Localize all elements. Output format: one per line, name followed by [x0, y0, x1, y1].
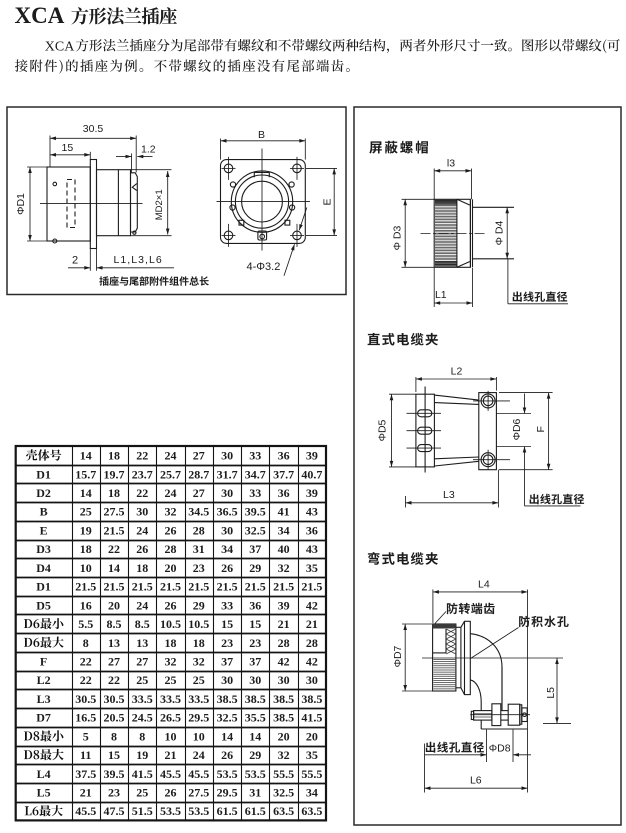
svg-text:10: 10 — [193, 729, 205, 743]
svg-text:21.5: 21.5 — [217, 580, 238, 594]
svg-text:16.5: 16.5 — [75, 711, 96, 725]
svg-text:XCA: XCA — [45, 39, 75, 54]
svg-text:36.5: 36.5 — [217, 505, 238, 519]
svg-text:32.5: 32.5 — [217, 711, 238, 725]
svg-text:27.5: 27.5 — [188, 786, 209, 800]
svg-text:21: 21 — [306, 617, 318, 631]
svg-text:14: 14 — [249, 729, 261, 743]
svg-text:35: 35 — [306, 561, 318, 575]
svg-text:32: 32 — [165, 505, 177, 519]
svg-text:63.5: 63.5 — [301, 804, 322, 818]
svg-text:Φ D3: Φ D3 — [392, 225, 404, 250]
svg-text:26: 26 — [165, 523, 177, 537]
svg-text:37.7: 37.7 — [273, 467, 294, 481]
svg-text:15: 15 — [221, 617, 233, 631]
svg-text:24: 24 — [136, 523, 148, 537]
svg-text:21.5: 21.5 — [245, 580, 266, 594]
svg-text:32.5: 32.5 — [245, 523, 266, 537]
svg-text:34: 34 — [278, 523, 290, 537]
svg-text:28: 28 — [306, 636, 318, 650]
svg-text:15: 15 — [249, 617, 261, 631]
svg-text:38.5: 38.5 — [273, 692, 294, 706]
svg-text:45.5: 45.5 — [188, 767, 209, 781]
svg-text:L4: L4 — [37, 767, 51, 781]
svg-text:18: 18 — [193, 636, 205, 650]
svg-text:36: 36 — [306, 523, 318, 537]
svg-text:23.7: 23.7 — [132, 467, 153, 481]
svg-text:36: 36 — [249, 598, 261, 612]
svg-text:25: 25 — [136, 673, 148, 687]
svg-text:28.7: 28.7 — [188, 467, 209, 481]
svg-text:32: 32 — [165, 655, 177, 669]
svg-text:34.5: 34.5 — [188, 505, 209, 519]
svg-text:21.5: 21.5 — [160, 580, 181, 594]
svg-text:55.5: 55.5 — [273, 767, 294, 781]
svg-text:23: 23 — [249, 636, 261, 650]
svg-text:ΦD7: ΦD7 — [392, 645, 404, 667]
svg-text:42: 42 — [278, 655, 290, 669]
svg-text:61.5: 61.5 — [245, 804, 266, 818]
svg-text:37: 37 — [221, 655, 233, 669]
svg-text:31: 31 — [249, 786, 261, 800]
svg-text:21.5: 21.5 — [273, 580, 294, 594]
svg-text:45.5: 45.5 — [160, 767, 181, 781]
svg-text:8.5: 8.5 — [135, 617, 150, 631]
svg-text:39: 39 — [278, 598, 290, 612]
svg-text:29.5: 29.5 — [188, 711, 209, 725]
svg-text:30: 30 — [221, 523, 233, 537]
svg-text:14: 14 — [108, 561, 120, 575]
svg-text:30.5: 30.5 — [75, 692, 96, 706]
svg-text:30: 30 — [136, 505, 148, 519]
svg-text:L2: L2 — [451, 366, 463, 378]
svg-text:40.7: 40.7 — [301, 467, 322, 481]
svg-text:21.5: 21.5 — [188, 580, 209, 594]
svg-text:21: 21 — [278, 617, 290, 631]
svg-text:15: 15 — [62, 142, 74, 154]
svg-text:39: 39 — [306, 449, 318, 463]
svg-text:L6: L6 — [470, 774, 482, 786]
svg-text:27.5: 27.5 — [104, 505, 125, 519]
svg-text:34.7: 34.7 — [245, 467, 266, 481]
svg-text:26.5: 26.5 — [160, 711, 181, 725]
svg-text:8: 8 — [83, 636, 89, 650]
svg-text:19: 19 — [136, 748, 148, 762]
svg-text:L5: L5 — [545, 687, 557, 699]
svg-text:22: 22 — [80, 655, 92, 669]
svg-text:L4: L4 — [478, 578, 490, 590]
svg-text:39.5: 39.5 — [104, 767, 125, 781]
svg-text:38.5: 38.5 — [301, 692, 322, 706]
svg-text:D1: D1 — [36, 467, 51, 481]
svg-text:31.7: 31.7 — [217, 467, 238, 481]
svg-text:25: 25 — [136, 786, 148, 800]
svg-text:19.7: 19.7 — [104, 467, 125, 481]
svg-text:10: 10 — [165, 729, 177, 743]
svg-text:ΦD1: ΦD1 — [15, 193, 27, 215]
svg-text:10.5: 10.5 — [160, 617, 181, 631]
svg-text:25.7: 25.7 — [160, 467, 181, 481]
svg-text:29: 29 — [249, 561, 261, 575]
svg-text:39: 39 — [306, 486, 318, 500]
svg-text:13: 13 — [108, 636, 120, 650]
svg-text:30: 30 — [221, 673, 233, 687]
svg-text:18: 18 — [80, 542, 92, 556]
svg-text:38.5: 38.5 — [245, 692, 266, 706]
svg-text:Φ D4: Φ D4 — [494, 220, 506, 245]
svg-text:31: 31 — [193, 542, 205, 556]
svg-text:35.5: 35.5 — [245, 711, 266, 725]
svg-text:25: 25 — [193, 673, 205, 687]
svg-text:35: 35 — [306, 748, 318, 762]
svg-text:11: 11 — [80, 748, 91, 762]
svg-text:18: 18 — [108, 486, 120, 500]
svg-text:18: 18 — [165, 636, 177, 650]
svg-text:D1: D1 — [36, 580, 51, 594]
svg-text:22: 22 — [108, 673, 120, 687]
svg-text:32.5: 32.5 — [273, 786, 294, 800]
svg-text:29: 29 — [193, 598, 205, 612]
svg-text:24.5: 24.5 — [132, 711, 153, 725]
svg-text:18: 18 — [136, 561, 148, 575]
svg-text:18: 18 — [108, 449, 120, 463]
svg-text:ΦD8: ΦD8 — [489, 743, 511, 755]
svg-text:42: 42 — [306, 655, 318, 669]
svg-text:30: 30 — [221, 486, 233, 500]
svg-text:22: 22 — [80, 673, 92, 687]
svg-text:53.5: 53.5 — [217, 767, 238, 781]
svg-text:16: 16 — [80, 598, 92, 612]
svg-text:30.5: 30.5 — [83, 123, 104, 135]
svg-text:1.2: 1.2 — [141, 144, 156, 156]
svg-text:D5: D5 — [36, 598, 51, 612]
svg-text:10: 10 — [80, 561, 92, 575]
svg-text:53.5: 53.5 — [245, 767, 266, 781]
svg-text:28: 28 — [278, 636, 290, 650]
svg-text:27: 27 — [193, 486, 205, 500]
svg-text:42: 42 — [306, 598, 318, 612]
svg-text:B: B — [258, 129, 265, 141]
svg-text:15: 15 — [108, 748, 120, 762]
svg-text:24: 24 — [193, 748, 205, 762]
svg-text:38.5: 38.5 — [273, 711, 294, 725]
svg-text:36: 36 — [278, 486, 290, 500]
svg-text:26: 26 — [165, 786, 177, 800]
svg-text:L1,L3,L6: L1,L3,L6 — [114, 254, 163, 266]
svg-text:39.5: 39.5 — [245, 505, 266, 519]
svg-text:30: 30 — [278, 673, 290, 687]
svg-text:30: 30 — [306, 673, 318, 687]
svg-text:22: 22 — [108, 542, 120, 556]
svg-text:22: 22 — [136, 449, 148, 463]
svg-text:D7: D7 — [36, 711, 51, 725]
svg-text:34: 34 — [306, 786, 318, 800]
svg-text:5: 5 — [83, 729, 89, 743]
svg-text:21.5: 21.5 — [75, 580, 96, 594]
svg-text:ΦD5: ΦD5 — [377, 419, 389, 441]
svg-text:33: 33 — [249, 449, 261, 463]
svg-text:E: E — [40, 523, 48, 537]
svg-text:14: 14 — [221, 729, 233, 743]
svg-text:25: 25 — [80, 505, 92, 519]
svg-text:4-Φ3.2: 4-Φ3.2 — [247, 261, 281, 273]
svg-text:26: 26 — [221, 561, 233, 575]
svg-text:29: 29 — [249, 748, 261, 762]
svg-text:33.5: 33.5 — [160, 692, 181, 706]
svg-text:41: 41 — [278, 505, 290, 519]
svg-text:13: 13 — [136, 636, 148, 650]
svg-text:33.5: 33.5 — [132, 692, 153, 706]
svg-text:21.5: 21.5 — [104, 580, 125, 594]
svg-text:MD2×1: MD2×1 — [154, 189, 165, 220]
svg-text:24: 24 — [136, 598, 148, 612]
svg-text:55.5: 55.5 — [301, 767, 322, 781]
svg-text:L3: L3 — [37, 692, 51, 706]
svg-text:D4: D4 — [36, 561, 51, 575]
svg-text:20: 20 — [108, 598, 120, 612]
svg-text:61.5: 61.5 — [217, 804, 238, 818]
svg-text:63.5: 63.5 — [273, 804, 294, 818]
svg-text:F: F — [40, 655, 47, 669]
svg-text:l3: l3 — [447, 158, 455, 170]
svg-text:22: 22 — [136, 486, 148, 500]
svg-text:32: 32 — [193, 655, 205, 669]
svg-text:E: E — [322, 198, 334, 205]
svg-text:21: 21 — [80, 786, 92, 800]
svg-text:21.5: 21.5 — [132, 580, 153, 594]
svg-text:41.5: 41.5 — [301, 711, 322, 725]
svg-text:D3: D3 — [36, 542, 51, 556]
svg-text:45.5: 45.5 — [75, 804, 96, 818]
svg-text:21.5: 21.5 — [104, 523, 125, 537]
svg-text:30.5: 30.5 — [104, 692, 125, 706]
svg-text:19: 19 — [80, 523, 92, 537]
svg-text:8: 8 — [111, 729, 117, 743]
svg-text:47.5: 47.5 — [104, 804, 125, 818]
svg-text:23: 23 — [221, 636, 233, 650]
svg-text:F: F — [535, 426, 547, 432]
svg-text:L3: L3 — [443, 489, 455, 501]
svg-text:14: 14 — [80, 449, 92, 463]
svg-text:34: 34 — [221, 542, 233, 556]
svg-text:L1: L1 — [435, 289, 447, 301]
svg-text:30: 30 — [221, 449, 233, 463]
svg-text:15.7: 15.7 — [75, 467, 96, 481]
svg-text:20.5: 20.5 — [104, 711, 125, 725]
svg-text:32: 32 — [278, 748, 290, 762]
svg-text:21.5: 21.5 — [301, 580, 322, 594]
svg-text:53.5: 53.5 — [160, 804, 181, 818]
svg-text:26: 26 — [221, 748, 233, 762]
svg-text:21: 21 — [165, 748, 177, 762]
svg-text:36: 36 — [278, 449, 290, 463]
svg-text:5.5: 5.5 — [78, 617, 93, 631]
svg-text:2: 2 — [72, 255, 78, 267]
svg-text:27: 27 — [193, 449, 205, 463]
svg-text:29.5: 29.5 — [217, 786, 238, 800]
svg-text:33.5: 33.5 — [188, 692, 209, 706]
svg-text:20: 20 — [165, 561, 177, 575]
svg-text:38.5: 38.5 — [217, 692, 238, 706]
svg-text:37: 37 — [249, 655, 261, 669]
svg-text:32: 32 — [278, 561, 290, 575]
svg-text:30: 30 — [249, 673, 261, 687]
svg-text:27: 27 — [136, 655, 148, 669]
svg-text:37.5: 37.5 — [75, 767, 96, 781]
svg-text:23: 23 — [193, 561, 205, 575]
svg-text:20: 20 — [306, 729, 318, 743]
svg-text:41.5: 41.5 — [132, 767, 153, 781]
svg-text:10.5: 10.5 — [188, 617, 209, 631]
svg-text:43: 43 — [306, 542, 318, 556]
svg-text:ΦD6: ΦD6 — [511, 418, 523, 440]
svg-text:24: 24 — [165, 486, 177, 500]
svg-text:26: 26 — [136, 542, 148, 556]
svg-text:33: 33 — [249, 486, 261, 500]
svg-text:D2: D2 — [36, 486, 51, 500]
svg-text:25: 25 — [165, 673, 177, 687]
svg-text:L2: L2 — [37, 673, 51, 687]
svg-text:14: 14 — [80, 486, 92, 500]
svg-text:51.5: 51.5 — [132, 804, 153, 818]
svg-text:28: 28 — [193, 523, 205, 537]
svg-text:20: 20 — [278, 729, 290, 743]
svg-text:L5: L5 — [37, 786, 51, 800]
svg-text:28: 28 — [165, 542, 177, 556]
svg-text:53.5: 53.5 — [188, 804, 209, 818]
svg-text:26: 26 — [165, 598, 177, 612]
svg-text:40: 40 — [278, 542, 290, 556]
svg-text:8: 8 — [139, 729, 145, 743]
svg-text:8.5: 8.5 — [107, 617, 122, 631]
svg-text:24: 24 — [165, 449, 177, 463]
svg-text:27: 27 — [108, 655, 120, 669]
svg-text:23: 23 — [108, 786, 120, 800]
svg-text:43: 43 — [306, 505, 318, 519]
svg-text:37: 37 — [249, 542, 261, 556]
svg-text:B: B — [40, 505, 48, 519]
svg-text:XCA: XCA — [15, 3, 65, 28]
svg-text:33: 33 — [221, 598, 233, 612]
